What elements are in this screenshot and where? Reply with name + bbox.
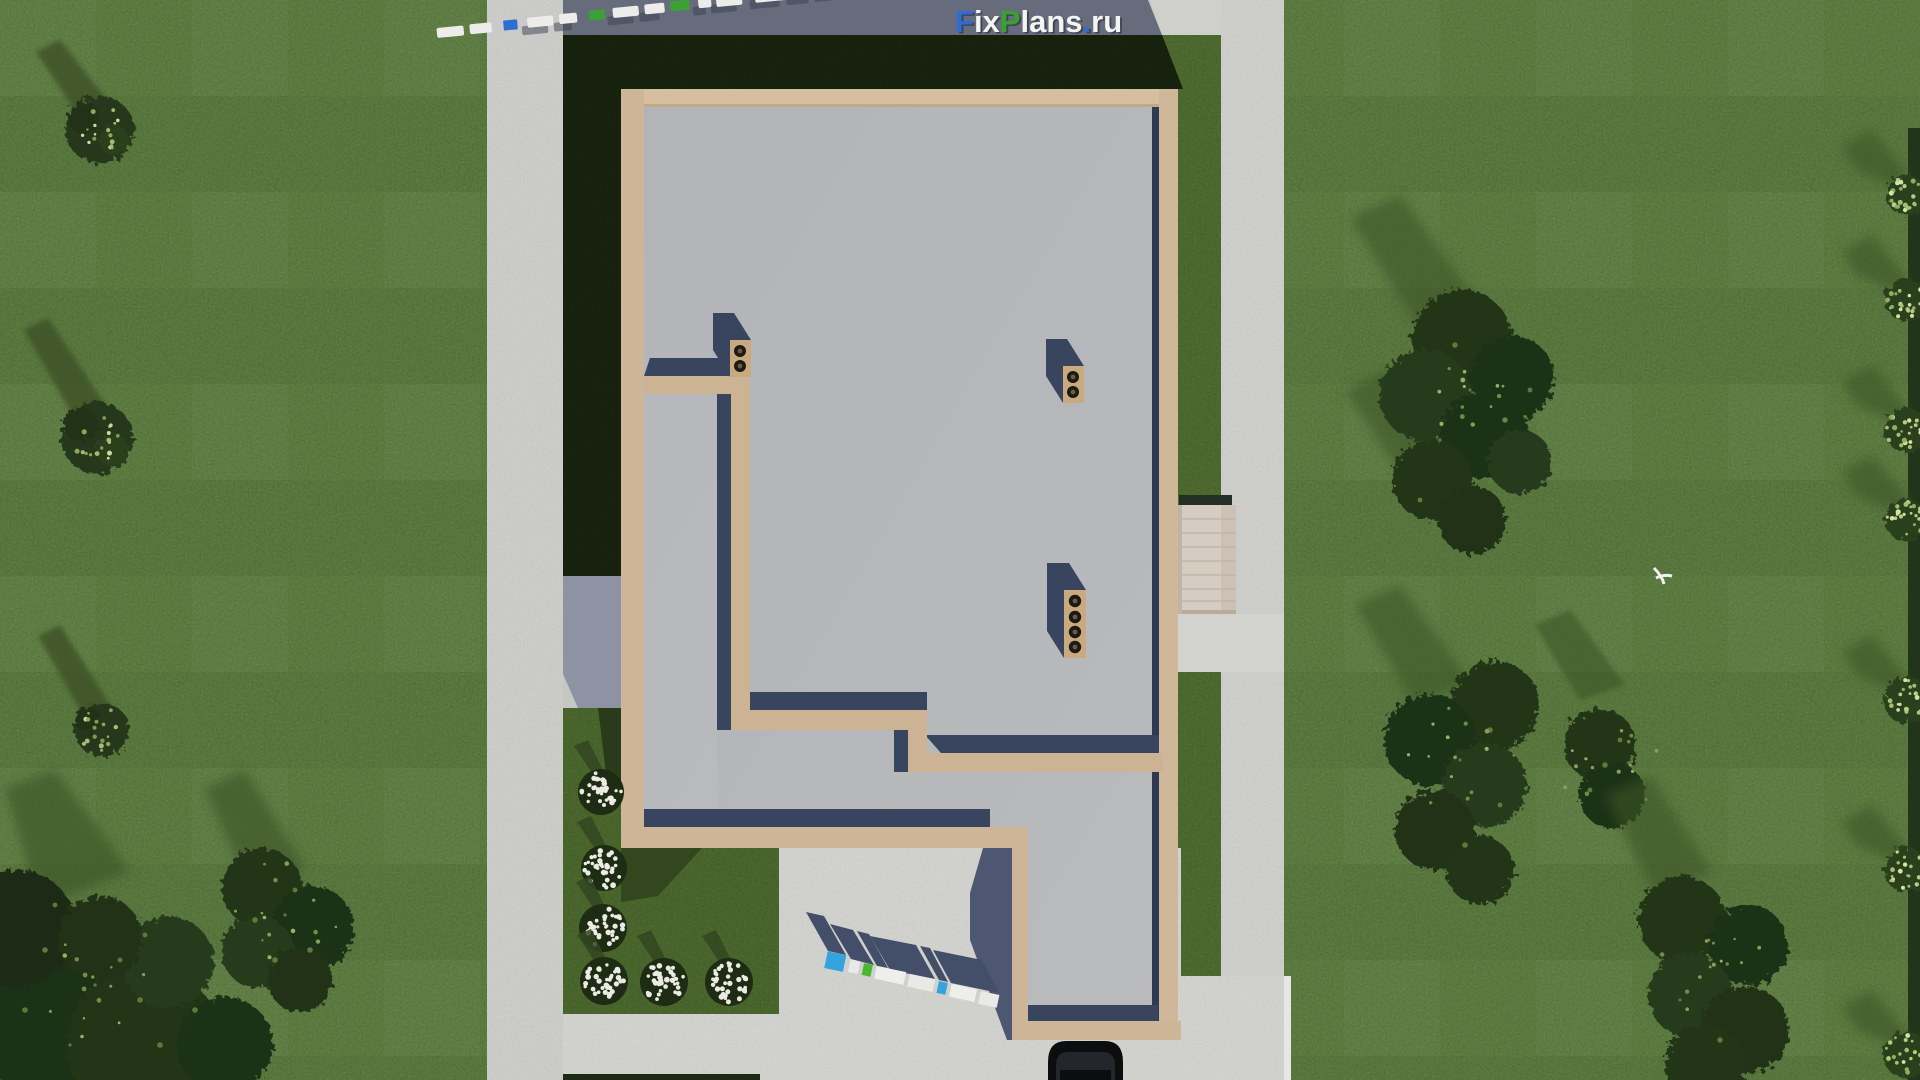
svg-text:FixPlans.ru: FixPlans.ru [955,4,1122,39]
